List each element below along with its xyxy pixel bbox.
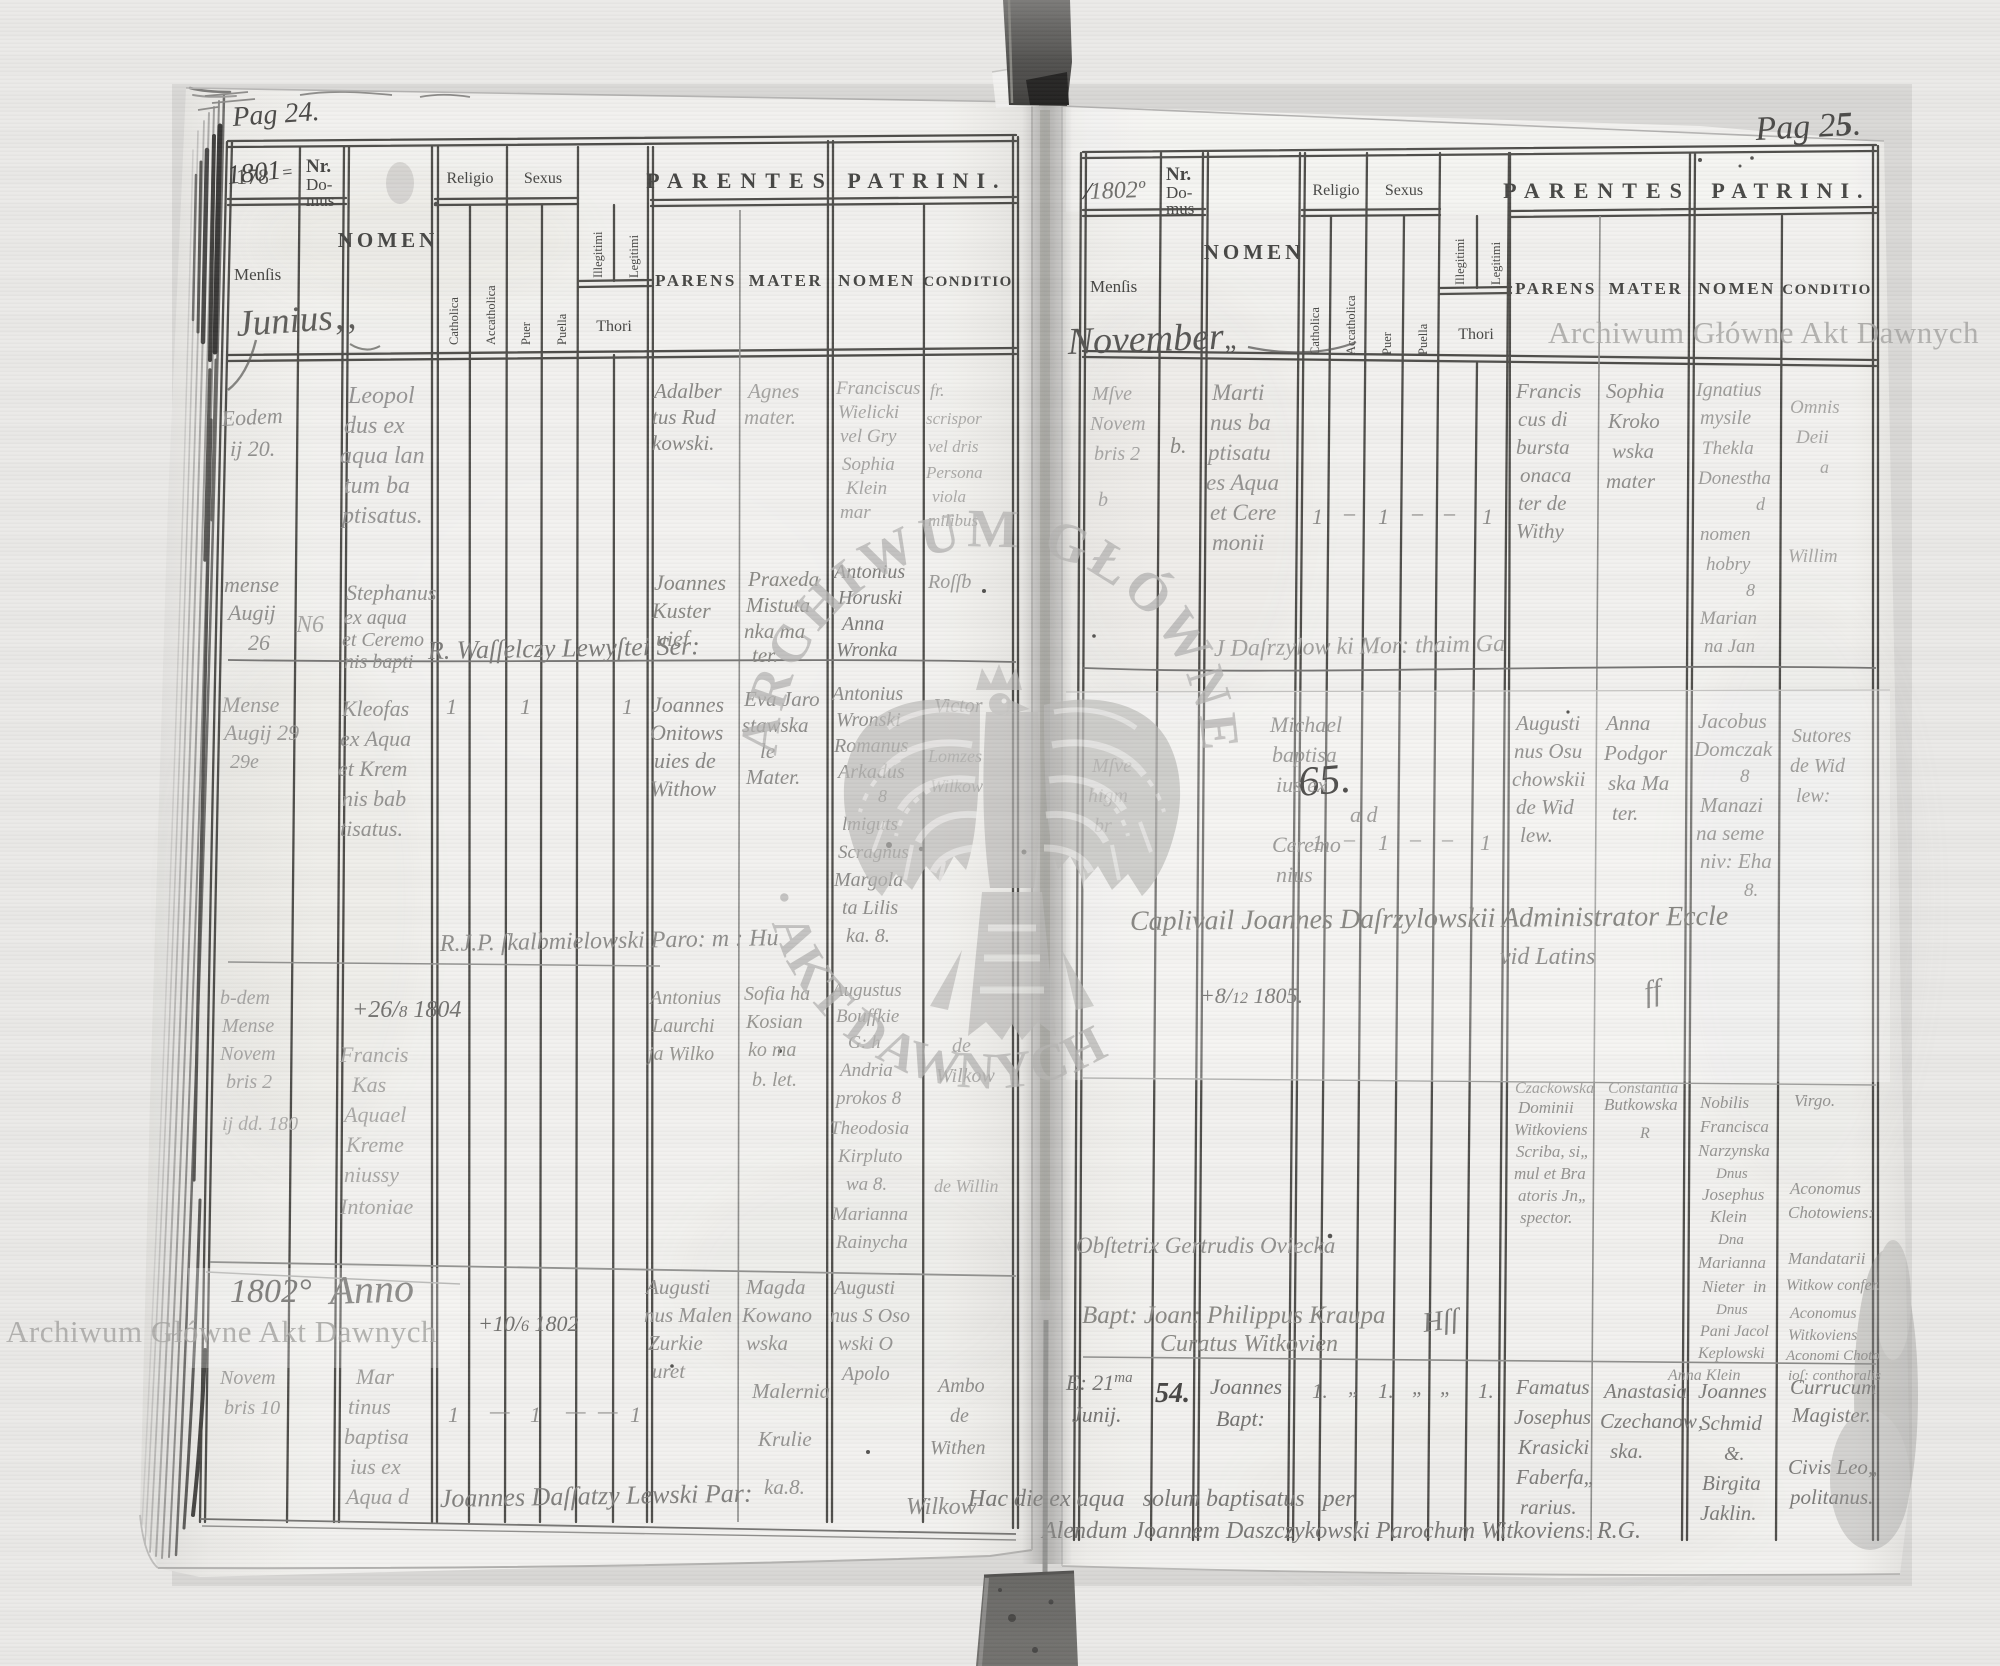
svg-text:1: 1 <box>1378 504 1389 529</box>
svg-text:8: 8 <box>1746 580 1755 600</box>
svg-text:Augij 29: Augij 29 <box>222 720 299 745</box>
svg-text:ius ex: ius ex <box>350 1454 401 1479</box>
svg-text:de: de <box>950 1405 969 1427</box>
svg-text:bris 2: bris 2 <box>1094 443 1140 465</box>
svg-text:nus ba: nus ba <box>1210 410 1271 435</box>
svg-text:mar: mar <box>840 502 871 523</box>
svg-text:ter de: ter de <box>1518 491 1566 515</box>
svg-text:Birgita: Birgita <box>1702 1471 1761 1495</box>
svg-text:Anno: Anno <box>326 1265 415 1313</box>
svg-text:–: – <box>1441 826 1454 851</box>
svg-text:Wronka: Wronka <box>836 639 897 661</box>
svg-text:PARENTES: PARENTES <box>1503 178 1691 203</box>
svg-text:Sexus: Sexus <box>1385 182 1423 199</box>
svg-text:Catholica: Catholica <box>447 297 461 345</box>
svg-text:vel Gry: vel Gry <box>840 426 897 447</box>
svg-text:Virgo.: Virgo. <box>1794 1091 1835 1110</box>
svg-text:Puer: Puer <box>1380 331 1394 355</box>
svg-text:Nobilis: Nobilis <box>1699 1093 1750 1112</box>
svg-text:Josephus: Josephus <box>1514 1405 1591 1429</box>
svg-text:1: 1 <box>520 694 531 719</box>
svg-text:Francisca: Francisca <box>1699 1117 1769 1136</box>
svg-text:Augusti: Augusti <box>1514 711 1580 735</box>
svg-text:nus Osu: nus Osu <box>1514 739 1582 763</box>
svg-text:baptisa: baptisa <box>344 1424 409 1449</box>
svg-text:Kas: Kas <box>351 1072 386 1097</box>
svg-text:Krasicki: Krasicki <box>1517 1435 1589 1459</box>
svg-text:b. let.: b. let. <box>752 1069 797 1091</box>
svg-text:Witkoviens: Witkoviens <box>1788 1327 1857 1344</box>
svg-text:Illegitimi: Illegitimi <box>1453 238 1467 285</box>
svg-text:ij 20.: ij 20. <box>230 436 275 461</box>
svg-text:1: 1 <box>1482 504 1493 529</box>
svg-text:Czechanow‚: Czechanow‚ <box>1600 1409 1704 1433</box>
svg-text:Aconomus: Aconomus <box>1789 1305 1857 1322</box>
svg-text:Bapt:: Bapt: <box>1216 1406 1265 1431</box>
svg-text:Stephanus: Stephanus <box>346 580 436 605</box>
svg-text:Marti: Marti <box>1211 380 1264 405</box>
svg-text:Dna: Dna <box>1717 1232 1744 1248</box>
svg-text:NOMEN: NOMEN <box>1204 240 1305 264</box>
svg-text:Jaklin.: Jaklin. <box>1700 1501 1757 1525</box>
svg-text:et Krem: et Krem <box>338 756 407 781</box>
svg-text:+8/12 1805.: +8/12 1805. <box>1200 983 1303 1008</box>
svg-text:Jacobus: Jacobus <box>1698 709 1767 733</box>
svg-text:Theodosia: Theodosia <box>830 1118 909 1139</box>
svg-text:Novem: Novem <box>219 1043 276 1065</box>
svg-text:Rainycha: Rainycha <box>835 1232 908 1253</box>
svg-text:a: a <box>1820 457 1829 477</box>
svg-text:–: – <box>1343 500 1356 525</box>
svg-text:Persona: Persona <box>925 463 983 482</box>
svg-text:Kirpluto: Kirpluto <box>837 1146 902 1167</box>
svg-text:Roſſb: Roſſb <box>927 571 971 593</box>
svg-text:ska.: ska. <box>1610 1439 1643 1463</box>
svg-text:PATRINI.: PATRINI. <box>847 168 1006 193</box>
svg-text:ka. 8.: ka. 8. <box>846 925 890 947</box>
svg-text:onaca: onaca <box>1520 463 1571 487</box>
svg-text:uret: uret <box>652 1359 686 1383</box>
svg-text:–: – <box>1411 500 1424 525</box>
svg-text:prokos 8: prokos 8 <box>834 1088 902 1109</box>
svg-text:bris 2: bris 2 <box>226 1071 272 1093</box>
svg-text:Aqua d: Aqua d <box>344 1484 410 1509</box>
svg-text:baptisa: baptisa <box>1272 742 1337 767</box>
svg-text:Leopol: Leopol <box>347 383 415 409</box>
svg-text:PARENS: PARENS <box>1515 279 1597 298</box>
svg-text:Kroko: Kroko <box>1607 409 1660 433</box>
svg-text:b-dem: b-dem <box>220 987 270 1009</box>
svg-text:Apolo: Apolo <box>840 1363 890 1385</box>
svg-text:na Jan: na Jan <box>1704 636 1755 657</box>
svg-text:1.: 1. <box>1478 1379 1494 1403</box>
svg-text:Archiwum Główne Akt Dawnych: Archiwum Główne Akt Dawnych <box>6 1314 437 1349</box>
svg-text:Manazi: Manazi <box>1699 793 1763 817</box>
svg-text:PARENTES: PARENTES <box>646 168 834 193</box>
svg-text:Thekla: Thekla <box>1702 438 1754 459</box>
svg-text:Curatus Witkovien: Curatus Witkovien <box>1160 1331 1338 1357</box>
svg-text:Dnus: Dnus <box>1715 1166 1748 1182</box>
svg-text:Francis: Francis <box>1515 379 1581 403</box>
svg-text:–: – <box>1343 826 1356 851</box>
svg-text:Mense: Mense <box>221 692 280 717</box>
svg-text:Pag 25.: Pag 25. <box>1753 106 1862 149</box>
svg-text:na seme: na seme <box>1696 821 1764 845</box>
svg-text:rarius.: rarius. <box>1520 1495 1577 1519</box>
svg-text:N6: N6 <box>295 612 324 638</box>
svg-text:NOMEN: NOMEN <box>338 228 439 252</box>
svg-text:Franciscus: Franciscus <box>835 378 920 399</box>
svg-text:mater.: mater. <box>744 405 796 429</box>
svg-text:Nr.: Nr. <box>306 156 331 177</box>
svg-text:Dnus: Dnus <box>1715 1302 1748 1318</box>
svg-text:Krulie: Krulie <box>757 1427 812 1451</box>
svg-text:Ceremo: Ceremo <box>1272 832 1341 857</box>
svg-text:Thori: Thori <box>1458 326 1494 343</box>
svg-text:nis bab: nis bab <box>342 786 406 811</box>
svg-text:Religio: Religio <box>446 170 493 187</box>
svg-text:1: 1 <box>630 1402 641 1427</box>
svg-text:Augusti: Augusti <box>644 1275 710 1299</box>
svg-text:1: 1 <box>1312 830 1323 855</box>
svg-text:Ambo: Ambo <box>936 1375 985 1397</box>
svg-text:Chotowiens:: Chotowiens: <box>1788 1203 1874 1222</box>
svg-text:Joannes Daſſatzy Lewski Par:: Joannes Daſſatzy Lewski Par: <box>440 1479 753 1513</box>
svg-text:Czackowska: Czackowska <box>1515 1080 1594 1097</box>
svg-text:tinus: tinus <box>348 1394 391 1419</box>
svg-text:Keplowski: Keplowski <box>1697 1345 1765 1362</box>
svg-text:scrispor: scrispor <box>926 409 982 428</box>
svg-text:„: „ <box>1440 1375 1452 1399</box>
svg-text:Augij: Augij <box>226 600 276 625</box>
svg-text:Klein: Klein <box>1709 1207 1747 1226</box>
svg-text:Menſis: Menſis <box>234 265 281 284</box>
svg-text:Sophia: Sophia <box>842 454 895 475</box>
svg-text:bris 10: bris 10 <box>224 1397 280 1419</box>
svg-text:Junius‚‚: Junius‚‚ <box>235 296 359 345</box>
svg-text:fr.: fr. <box>930 380 945 400</box>
svg-text:Narzynska: Narzynska <box>1697 1141 1770 1160</box>
svg-text:Kuster: Kuster <box>651 598 711 623</box>
svg-text:a d: a d <box>1350 802 1379 827</box>
svg-text:Sophia: Sophia <box>1606 379 1664 403</box>
svg-text:–: – <box>1409 826 1422 851</box>
svg-text:ja Wilko: ja Wilko <box>645 1043 714 1065</box>
svg-text:Aquael: Aquael <box>342 1102 406 1127</box>
svg-text:CONDITIO: CONDITIO <box>1782 282 1872 298</box>
svg-text:Sexus: Sexus <box>524 170 562 187</box>
svg-text:Alendum Joannem Daszczykowski: Alendum Joannem Daszczykowski Parochum W… <box>1040 1518 1641 1544</box>
svg-text:Magda: Magda <box>745 1275 806 1299</box>
svg-text:54.: 54. <box>1155 1378 1190 1409</box>
svg-text:tum ba: tum ba <box>344 473 410 499</box>
svg-text:Podgor: Podgor <box>1603 741 1668 765</box>
svg-text:ex aqua: ex aqua <box>344 607 407 629</box>
svg-text:ij dd. 180: ij dd. 180 <box>222 1113 298 1135</box>
svg-text:tus Rud: tus Rud <box>652 405 716 429</box>
svg-text:ptisatus.: ptisatus. <box>340 503 423 529</box>
svg-text:1: 1 <box>1480 830 1491 855</box>
svg-text:Mense: Mense <box>221 1015 274 1037</box>
svg-text:wa 8.: wa 8. <box>846 1174 887 1195</box>
svg-text:26: 26 <box>248 630 270 655</box>
svg-text:Joannes: Joannes <box>1210 1374 1282 1399</box>
svg-text:ter.: ter. <box>1612 801 1638 825</box>
svg-text:b: b <box>1098 489 1108 511</box>
svg-text:1802°: 1802° <box>230 1273 312 1310</box>
svg-text:Intoniae: Intoniae <box>339 1194 414 1219</box>
svg-text:Michael: Michael <box>1269 712 1342 737</box>
svg-text:Novem: Novem <box>1089 413 1146 435</box>
svg-text:monii: monii <box>1212 530 1264 555</box>
svg-text:ko ma: ko ma <box>748 1039 796 1061</box>
svg-text:Joannes: Joannes <box>652 692 724 717</box>
svg-text:Famatus: Famatus <box>1515 1375 1590 1399</box>
svg-text:Faberfa„: Faberfa„ <box>1515 1465 1595 1489</box>
svg-text:Catholica: Catholica <box>1308 307 1322 355</box>
svg-text:ta Lilis: ta Lilis <box>842 897 898 919</box>
svg-text:PARENS: PARENS <box>655 271 737 290</box>
svg-text:Adalber: Adalber <box>652 379 722 403</box>
svg-text:Joannes: Joannes <box>1698 1379 1767 1403</box>
svg-text:spector.: spector. <box>1520 1208 1572 1227</box>
svg-text:bursta: bursta <box>1516 435 1570 459</box>
svg-text:Withen: Withen <box>930 1437 986 1459</box>
svg-text:Agnes: Agnes <box>746 379 799 403</box>
svg-text:—: — <box>565 1398 586 1423</box>
svg-text:1.: 1. <box>1312 1379 1328 1403</box>
svg-text:CONDITIO: CONDITIO <box>923 274 1013 290</box>
svg-text:Wielicki: Wielicki <box>838 402 899 423</box>
svg-text:PATRINI.: PATRINI. <box>1711 178 1870 203</box>
svg-text:ex Aqua: ex Aqua <box>340 726 411 751</box>
svg-text:Omnis: Omnis <box>1790 397 1840 418</box>
svg-text:ska Ma: ska Ma <box>1608 771 1669 795</box>
svg-text:Anna: Anna <box>1604 711 1650 735</box>
svg-text:wska: wska <box>746 1331 788 1355</box>
svg-text:lew.: lew. <box>1520 823 1553 847</box>
svg-text:+10/6 1802: +10/6 1802 <box>478 1311 578 1336</box>
svg-text:Onitows: Onitows <box>650 720 723 745</box>
svg-text:Kowano: Kowano <box>741 1303 812 1327</box>
svg-text:de Wid: de Wid <box>1516 795 1574 819</box>
svg-text:Ignatius: Ignatius <box>1695 379 1762 401</box>
svg-text:—: — <box>597 1398 618 1423</box>
svg-text:vid Latins: vid Latins <box>1500 944 1595 970</box>
svg-text:niussy: niussy <box>344 1162 399 1187</box>
svg-text:1: 1 <box>446 694 457 719</box>
svg-text:nus Malen: nus Malen <box>644 1303 732 1327</box>
svg-text:R: R <box>1639 1125 1650 1142</box>
svg-text:et Cere: et Cere <box>1210 500 1276 525</box>
svg-text:Archiwum Główne Akt Dawnych: Archiwum Główne Akt Dawnych <box>1548 315 1979 350</box>
svg-text:Malernia: Malernia <box>751 1379 830 1403</box>
svg-text:∕1802º: ∕1802º <box>1080 177 1146 205</box>
svg-text:„: „ <box>1348 1375 1360 1399</box>
svg-text:„: „ <box>1412 1375 1424 1399</box>
svg-text:–: – <box>1443 500 1456 525</box>
svg-text:Wilkow: Wilkow <box>906 1494 977 1520</box>
svg-text:nus S Oso: nus S Oso <box>830 1305 910 1327</box>
svg-text:Antonius: Antonius <box>830 683 903 705</box>
svg-text:1.: 1. <box>1378 1379 1394 1403</box>
svg-text:kowski.: kowski. <box>652 431 714 455</box>
svg-text:Augusti: Augusti <box>832 1277 895 1299</box>
svg-text:Scriba, si„: Scriba, si„ <box>1516 1142 1590 1161</box>
svg-text:1: 1 <box>1378 830 1389 855</box>
svg-text:aqua lan: aqua lan <box>340 443 425 469</box>
svg-text:8.: 8. <box>1744 880 1758 901</box>
svg-text:dus ex: dus ex <box>344 413 405 439</box>
svg-text:Bapt: Joan: Philippus Kraupa: Bapt: Joan: Philippus Kraupa <box>1082 1302 1385 1329</box>
svg-text:Antonius: Antonius <box>648 987 721 1009</box>
svg-text:tisatus.: tisatus. <box>340 816 403 841</box>
svg-text:Donestha: Donestha <box>1697 468 1771 489</box>
svg-text:Willim: Willim <box>1788 546 1838 567</box>
svg-text:wska: wska <box>1612 439 1654 463</box>
svg-text:Marianna: Marianna <box>831 1204 908 1225</box>
svg-text:mus: mus <box>306 191 334 210</box>
svg-text:Francis: Francis <box>339 1042 408 1067</box>
svg-text:Kosian: Kosian <box>745 1011 803 1033</box>
svg-text:Marianna: Marianna <box>1697 1253 1766 1272</box>
svg-text:Mſve: Mſve <box>1091 383 1132 405</box>
svg-text:Klein: Klein <box>845 478 887 499</box>
svg-text:Religio: Religio <box>1312 182 1359 199</box>
svg-text:J Daſrzylow ki Mor: thaim Ga: J Daſrzylow ki Mor: thaim Ga <box>1214 631 1506 662</box>
svg-text:November„: November„ <box>1066 315 1240 363</box>
svg-text:Dominii: Dominii <box>1517 1098 1574 1117</box>
svg-text:mysile: mysile <box>1700 407 1751 429</box>
svg-text:de Willin: de Willin <box>934 1176 999 1196</box>
svg-text:Domczak: Domczak <box>1693 737 1773 761</box>
svg-text:Novem: Novem <box>219 1367 276 1389</box>
svg-text:b.: b. <box>1170 433 1187 458</box>
svg-text:Mar: Mar <box>355 1364 394 1389</box>
svg-text:MATER: MATER <box>749 271 824 290</box>
svg-text:1: 1 <box>530 1402 541 1427</box>
svg-text:mul et Bra: mul et Bra <box>1514 1164 1586 1183</box>
svg-text:Josephus: Josephus <box>1702 1185 1765 1204</box>
svg-text:vel dris: vel dris <box>928 437 979 456</box>
svg-text:es Aqua: es Aqua <box>1206 470 1279 495</box>
svg-text:Deii: Deii <box>1795 427 1829 448</box>
svg-text:Nieter in: Nieter in <box>1701 1277 1766 1296</box>
svg-text:Puella: Puella <box>555 313 569 345</box>
svg-text:Withy: Withy <box>1516 519 1565 543</box>
svg-text:de Wid: de Wid <box>1790 755 1846 777</box>
svg-text:ka.8.: ka.8. <box>764 1475 805 1499</box>
svg-text:Nr.: Nr. <box>1166 164 1191 185</box>
svg-text:Menſis: Menſis <box>1090 277 1137 296</box>
svg-text:et Ceremo: et Ceremo <box>342 629 424 651</box>
svg-text:Legitimi: Legitimi <box>627 234 641 278</box>
svg-text:cus di: cus di <box>1518 407 1568 431</box>
svg-text:Obſtetrix Gertrudis Oviecka: Obſtetrix Gertrudis Oviecka <box>1076 1233 1335 1258</box>
svg-text:Junij.: Junij. <box>1072 1402 1122 1427</box>
svg-text:Marian: Marian <box>1699 608 1757 629</box>
svg-text:Joannes: Joannes <box>654 570 726 595</box>
svg-text:uies de: uies de <box>654 748 716 773</box>
svg-text:Aconomus: Aconomus <box>1789 1179 1861 1198</box>
svg-text:Butkowska: Butkowska <box>1604 1095 1678 1114</box>
svg-text:Mandatarii: Mandatarii <box>1787 1249 1866 1268</box>
svg-text:chowskii: chowskii <box>1512 767 1586 791</box>
svg-text:Zurkie: Zurkie <box>648 1331 703 1355</box>
svg-text:Pag 24.: Pag 24. <box>230 96 320 133</box>
svg-text:mus: mus <box>1166 199 1194 218</box>
svg-text:Pani Jacol: Pani Jacol <box>1699 1323 1769 1340</box>
svg-text:1: 1 <box>448 1402 459 1427</box>
svg-text:Schmid: Schmid <box>1700 1411 1762 1435</box>
svg-text:niv: Eha: niv: Eha <box>1700 849 1772 873</box>
svg-text:29e: 29e <box>230 751 259 773</box>
svg-text:Laurchi: Laurchi <box>651 1015 715 1037</box>
svg-text:uief: uief <box>656 626 692 651</box>
svg-text:NOMEN: NOMEN <box>838 271 916 290</box>
svg-text:mense: mense <box>224 572 279 597</box>
svg-text:Illegitimi: Illegitimi <box>591 231 605 278</box>
svg-text:Sutores: Sutores <box>1792 725 1851 747</box>
svg-text:mater: mater <box>1606 469 1656 493</box>
svg-text:nomen: nomen <box>1700 524 1751 545</box>
svg-text:Accatholica: Accatholica <box>484 285 498 345</box>
svg-text:Mater.: Mater. <box>745 765 800 789</box>
svg-text:+26/8 1804: +26/8 1804 <box>352 997 461 1023</box>
svg-text:8: 8 <box>1740 766 1750 787</box>
svg-text:nius: nius <box>1276 862 1313 887</box>
svg-text:Withow: Withow <box>650 776 716 801</box>
svg-text:Witkoviens: Witkoviens <box>1514 1120 1588 1139</box>
svg-text:wski O: wski O <box>838 1333 893 1355</box>
svg-text:MATER: MATER <box>1609 279 1684 298</box>
svg-text:1: 1 <box>622 694 633 719</box>
svg-text:nis bapti: nis bapti <box>344 651 413 673</box>
svg-text:Kreme: Kreme <box>345 1132 404 1157</box>
svg-text:Thori: Thori <box>596 318 632 335</box>
svg-text:d: d <box>1756 494 1766 514</box>
svg-text:1: 1 <box>1312 504 1323 529</box>
svg-text:ptisatu: ptisatu <box>1206 440 1271 465</box>
svg-text:Caplivail Joannes Daſrzylowski: Caplivail Joannes Daſrzylowskii Administ… <box>1130 901 1729 937</box>
svg-text:hobry: hobry <box>1706 554 1751 575</box>
svg-text:Anastasia: Anastasia <box>1602 1379 1687 1403</box>
svg-text:lew:: lew: <box>1796 785 1830 807</box>
svg-text:Puella: Puella <box>1416 323 1430 355</box>
svg-text:Legitimi: Legitimi <box>1489 241 1503 285</box>
svg-text:—: — <box>489 1398 510 1423</box>
svg-text:Kleofas: Kleofas <box>341 696 409 721</box>
svg-text:ius ex: ius ex <box>1276 772 1327 797</box>
svg-text:Eodem: Eodem <box>220 403 283 431</box>
svg-text:Puer: Puer <box>519 321 533 345</box>
svg-text:&.: &. <box>1724 1443 1745 1465</box>
svg-text:NOMEN: NOMEN <box>1698 279 1776 298</box>
svg-text:atoris Jn„: atoris Jn„ <box>1518 1186 1587 1205</box>
